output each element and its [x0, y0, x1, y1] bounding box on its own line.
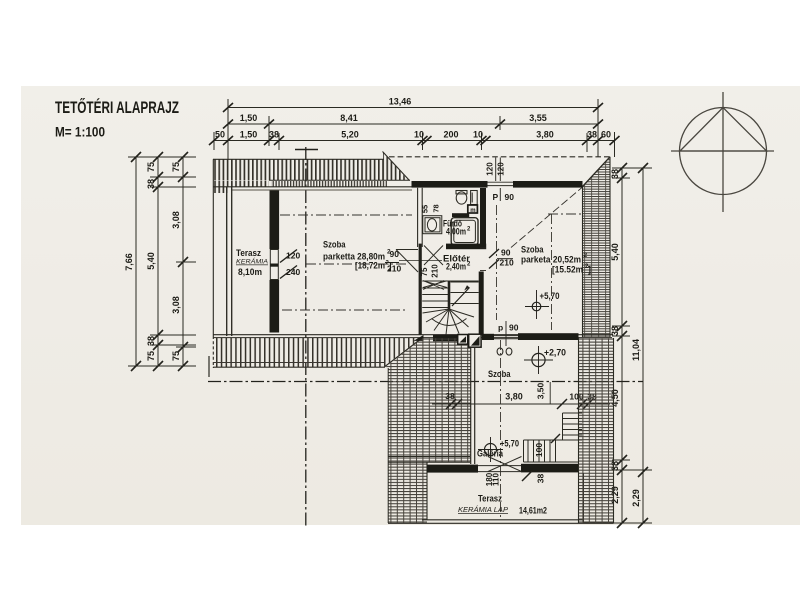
- svg-text:120: 120: [497, 162, 506, 176]
- svg-text:2: 2: [584, 252, 588, 259]
- svg-text:38: 38: [610, 169, 620, 179]
- svg-text:2,29: 2,29: [631, 489, 641, 507]
- svg-text:Szoba: Szoba: [488, 369, 511, 380]
- svg-text:8,41: 8,41: [340, 113, 358, 123]
- svg-text:3,80: 3,80: [505, 392, 523, 402]
- svg-text:210: 210: [387, 264, 401, 274]
- svg-text:14,61m2: 14,61m2: [519, 506, 547, 516]
- svg-text:50: 50: [215, 130, 225, 140]
- svg-text:KERÁMIA: KERÁMIA: [236, 257, 268, 266]
- svg-text:p: p: [498, 323, 503, 333]
- svg-text:90: 90: [501, 248, 511, 258]
- svg-text:38: 38: [146, 336, 156, 346]
- svg-text:1,50: 1,50: [240, 130, 258, 140]
- svg-text:7,66: 7,66: [124, 253, 134, 271]
- svg-text:100: 100: [534, 443, 544, 457]
- svg-text:75: 75: [171, 162, 181, 172]
- svg-text:2,40m: 2,40m: [446, 262, 466, 272]
- svg-text:3,08: 3,08: [171, 296, 181, 314]
- svg-text:90: 90: [505, 192, 515, 202]
- svg-text:55: 55: [421, 205, 430, 213]
- svg-text:210: 210: [431, 264, 440, 278]
- svg-text:11,04: 11,04: [631, 339, 641, 361]
- svg-text:120: 120: [486, 162, 495, 176]
- svg-text:M= 1:100: M= 1:100: [55, 124, 105, 140]
- svg-text:200: 200: [443, 130, 458, 140]
- svg-text:TETŐTÉRI ALAPRAJZ: TETŐTÉRI ALAPRAJZ: [55, 98, 179, 117]
- svg-text:3,80: 3,80: [536, 130, 554, 140]
- svg-text:P: P: [493, 192, 499, 202]
- svg-text:3,55: 3,55: [529, 113, 547, 123]
- svg-text:38: 38: [146, 179, 156, 189]
- svg-text:78: 78: [432, 204, 441, 212]
- svg-text:[15.52m: [15.52m: [552, 265, 583, 275]
- svg-text:m: m: [470, 208, 475, 214]
- svg-text:13,46: 13,46: [389, 97, 412, 107]
- svg-text:10: 10: [473, 130, 483, 140]
- svg-text:3,50: 3,50: [536, 382, 546, 399]
- svg-text:8,10m: 8,10m: [238, 267, 262, 277]
- svg-text:120: 120: [286, 251, 300, 261]
- svg-text:75: 75: [146, 351, 156, 361]
- svg-text:75: 75: [146, 162, 156, 172]
- svg-text:4,00m: 4,00m: [446, 227, 466, 237]
- svg-text:90: 90: [390, 249, 400, 259]
- svg-text:KERÁMIA LAP: KERÁMIA LAP: [458, 505, 508, 514]
- svg-text:Szoba: Szoba: [323, 240, 346, 251]
- svg-text:38: 38: [536, 474, 546, 484]
- svg-text:[18,72m: [18,72m: [355, 261, 385, 271]
- svg-text:+5,70: +5,70: [540, 291, 560, 301]
- svg-text:Terasz: Terasz: [236, 248, 261, 259]
- svg-text:75: 75: [171, 351, 181, 361]
- svg-text:5,40: 5,40: [610, 243, 620, 261]
- svg-text:38: 38: [269, 130, 279, 140]
- svg-text:1,50: 1,50: [240, 113, 258, 123]
- svg-text:5,20: 5,20: [341, 130, 359, 140]
- svg-text:10: 10: [414, 130, 424, 140]
- svg-text:3,08: 3,08: [171, 211, 181, 229]
- svg-text:+5,70: +5,70: [500, 439, 519, 449]
- svg-text:60: 60: [601, 130, 611, 140]
- svg-text:38: 38: [445, 391, 455, 401]
- svg-text:+2,70: +2,70: [544, 348, 566, 358]
- svg-text:240: 240: [286, 267, 300, 277]
- svg-text:75: 75: [420, 267, 429, 276]
- svg-text:Terasz: Terasz: [478, 494, 502, 505]
- svg-text:38: 38: [587, 130, 597, 140]
- svg-text:110: 110: [492, 472, 501, 485]
- svg-text:90: 90: [509, 323, 519, 333]
- svg-text:]: ]: [588, 265, 591, 275]
- svg-text:5,40: 5,40: [146, 252, 156, 270]
- svg-text:Galéria: Galéria: [477, 449, 504, 459]
